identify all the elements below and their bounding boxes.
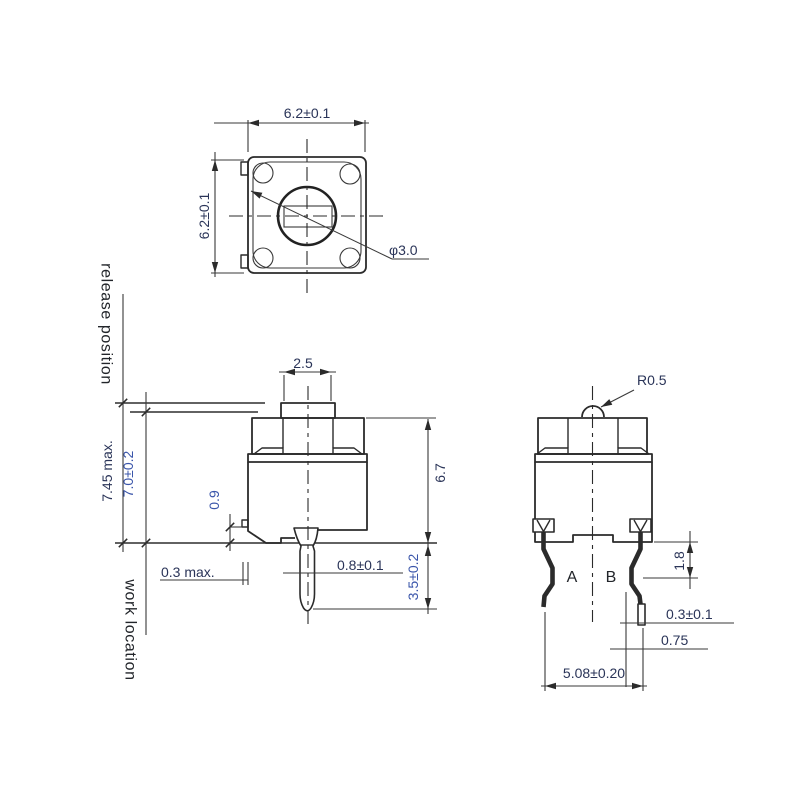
arrowhead: [354, 120, 365, 126]
dim-operating-height: 7.0±0.2: [120, 450, 136, 497]
top-view: 6.2±0.1 6.2±0.1 φ3.0: [196, 105, 429, 293]
corner-dome-top-right: [340, 164, 360, 184]
top-view-side-tab-upper: [241, 162, 248, 175]
terminal-a-label: A: [567, 569, 578, 586]
dim-dome-radius: R0.5: [637, 372, 667, 388]
corner-dome-top-left: [253, 163, 273, 183]
technical-drawing-page: 6.2±0.1 6.2±0.1 φ3.0: [0, 0, 800, 800]
tactile-switch-drawing: 6.2±0.1 6.2±0.1 φ3.0: [0, 0, 800, 800]
front-view: 2.5 7.45 max. 7.0±0.2 release position w…: [98, 263, 449, 680]
center-terminal-pin: [294, 528, 318, 611]
terminal-b-label: B: [606, 569, 617, 586]
side-view: R0.5 A B 1.8 0.3±0.1 0.75 5.08±0.20: [533, 372, 734, 691]
base-flange-side: [535, 454, 652, 462]
dim-body-height: 6.7: [432, 463, 448, 483]
work-location-label: work location: [122, 578, 139, 680]
dim-top-width: 6.2±0.1: [284, 105, 331, 121]
body-front-left: [248, 462, 295, 543]
arrowhead: [425, 598, 431, 609]
dim-stub-protrusion: 0.3 max.: [161, 564, 215, 580]
leg-shoulder-right: [630, 519, 651, 532]
corner-dome-bottom-left: [253, 248, 273, 268]
dim-bend-offset: 1.8: [671, 551, 687, 571]
dim-lead-thickness: 0.3±0.1: [666, 606, 713, 622]
arrowhead: [425, 532, 431, 543]
arrowhead: [212, 262, 218, 273]
arrowhead: [687, 542, 693, 553]
arrowhead: [425, 545, 431, 556]
dim-hole-diameter: φ3.0: [389, 242, 418, 258]
arrowhead: [687, 567, 693, 578]
dim-free-height: 7.45 max.: [99, 440, 115, 501]
arrowhead: [248, 120, 259, 126]
dim-terminal-length: 3.5±0.2: [405, 553, 421, 600]
release-position-label: release position: [98, 263, 115, 385]
arrowhead: [212, 160, 218, 171]
arrowhead: [425, 419, 431, 430]
dim-top-height: 6.2±0.1: [196, 192, 212, 239]
arrowhead: [601, 399, 612, 407]
terminal-leg-b-tip: [638, 604, 645, 625]
dim-lead-tip-offset: 0.75: [661, 632, 688, 648]
arrowhead: [320, 369, 331, 375]
leg-shoulder-left: [533, 519, 554, 532]
body-front-right: [317, 462, 367, 530]
top-view-side-tab-lower: [241, 255, 248, 268]
dim-stub-height: 0.9: [206, 490, 222, 510]
corner-dome-bottom-right: [340, 248, 360, 268]
arrowhead: [545, 683, 556, 689]
dim-lead-spacing: 5.08±0.20: [563, 665, 625, 681]
leader-line: [251, 191, 392, 259]
dim-terminal-width: 0.8±0.1: [337, 557, 384, 573]
dim-plunger-width: 2.5: [293, 355, 313, 371]
arrowhead: [632, 683, 643, 689]
